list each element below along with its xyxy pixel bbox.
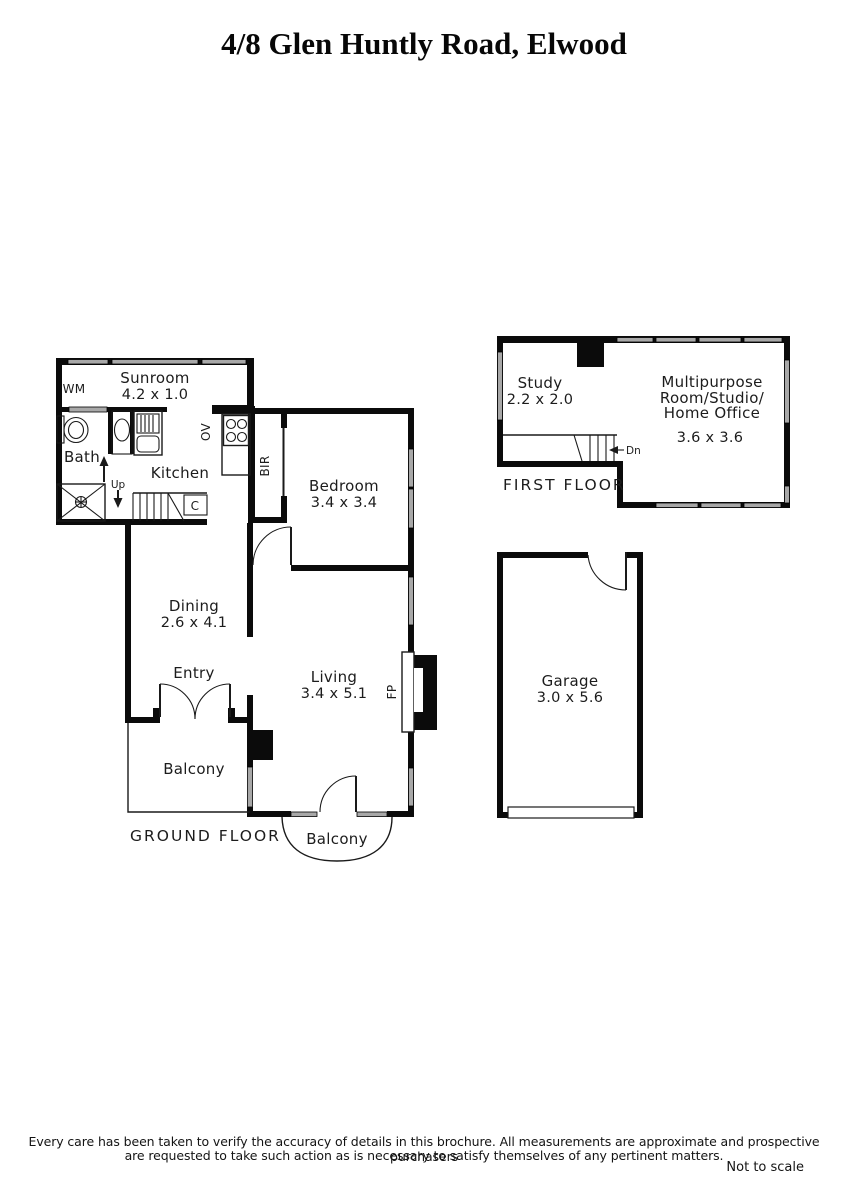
cupboard-label: C [191,499,200,513]
bedroom-door [253,527,291,565]
up-label: Up [111,479,126,491]
floorplan-drawing: WM Sunroom 4.2 x 1.0 Bath Kitchen OV BIR… [0,0,848,1200]
multipurpose-label-3: Home Office [664,404,760,422]
garage-roller-door [508,807,634,818]
disclaimer-line-2: are requested to take such action as is … [0,1148,848,1163]
stairs-down-icon [503,435,624,461]
balcony-front-label: Balcony [306,830,368,848]
fireplace-icon [402,652,437,732]
ground-floor-title: GROUND FLOOR [130,827,281,845]
kitchen-label: Kitchen [151,464,209,482]
living-label: Living [311,668,357,686]
dining-label: Dining [169,597,219,615]
wm-label: WM [63,382,86,396]
study-label: Study [518,374,563,392]
garage-entry-door [588,552,626,590]
scale-note: Not to scale [726,1160,804,1175]
first-floor-title: FIRST FLOOR [503,476,626,494]
sunroom-label: Sunroom [120,369,189,387]
ground-floor-plan: WM Sunroom 4.2 x 1.0 Bath Kitchen OV BIR… [56,358,437,861]
entry-label: Entry [173,664,214,682]
bath-label: Bath [64,448,100,466]
garage-plan: Garage 3.0 x 5.6 [497,552,643,818]
pillar [253,730,273,760]
shower-icon [57,484,105,521]
study-dims: 2.2 x 2.0 [507,392,574,408]
first-floor-plan: Study 2.2 x 2.0 Multipurpose Room/Studio… [497,336,790,508]
bedroom-label: Bedroom [309,477,379,495]
oven-label: OV [199,422,213,441]
garage-label: Garage [542,672,599,690]
floorplan-brochure-page: 4/8 Glen Huntly Road, Elwood [0,0,848,1200]
balcony-side-label: Balcony [163,760,225,778]
sunroom-dims: 4.2 x 1.0 [122,387,189,403]
living-dims: 3.4 x 5.1 [301,686,368,702]
basin-icon [112,411,132,454]
chimney [577,341,604,367]
fireplace-label: FP [385,685,399,700]
sink-icon [134,411,162,455]
bedroom-dims: 3.4 x 3.4 [311,495,378,511]
multipurpose-dims: 3.6 x 3.6 [677,430,744,446]
entry-doors [160,684,230,719]
dn-label: Dn [626,445,641,457]
bir-label: BIR [258,455,272,476]
stove-icon [222,414,250,475]
dining-dims: 2.6 x 4.1 [161,615,228,631]
garage-dims: 3.0 x 5.6 [537,690,604,706]
balcony-door [320,776,356,812]
